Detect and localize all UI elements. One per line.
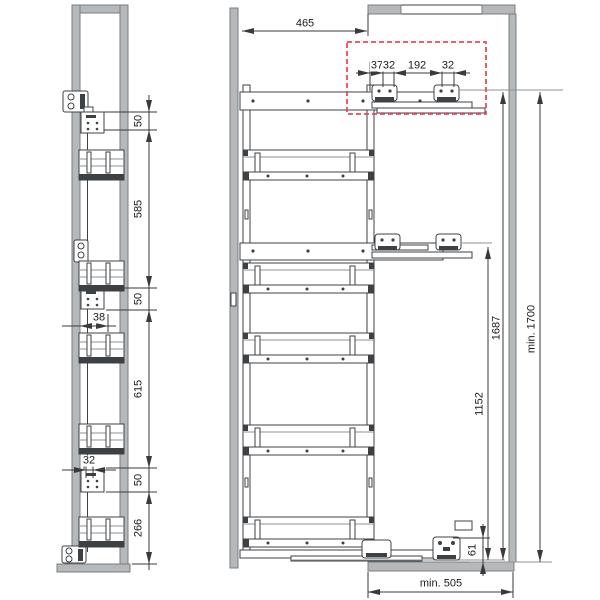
front-view-basket: [243, 333, 374, 363]
dim-label-side-upper-span: 585: [134, 199, 145, 219]
front-view-mid-roller-clip: [436, 234, 461, 250]
drawing-linework: [0, 0, 600, 600]
dim-label-side-bracket-inset: 38: [92, 313, 106, 324]
side-view-roller-carriage-mid: [74, 240, 88, 262]
dim-label-front-frame-depth: 465: [295, 19, 315, 30]
dim-label-detail-offset-c: 32: [441, 61, 455, 72]
dim-label-top-rail-height: 1687: [492, 315, 503, 341]
side-view-basket: [79, 424, 124, 454]
side-view-mounting-plate-top: [81, 107, 104, 133]
dim-label-side-hole-pitch: 32: [82, 456, 96, 467]
front-view: [230, 5, 563, 598]
dim-label-side-lower-span: 615: [134, 379, 145, 399]
dim-label-detail-offset-b: 32: [382, 61, 396, 72]
dim-label-side-mid-offset: 50: [134, 292, 145, 306]
dim-label-side-bottom-span: 266: [134, 518, 145, 538]
front-view-basket: [243, 150, 374, 180]
dim-label-cabinet-depth: min. 505: [419, 579, 463, 590]
dim-label-side-top-offset: 50: [134, 114, 145, 128]
front-view-top-roller-clip: [434, 85, 459, 101]
side-view-roller-carriage-bottom: [62, 546, 86, 563]
front-view-floor-bracket: [433, 537, 460, 560]
side-view-dimension-38: [62, 314, 116, 332]
side-view-basket: [79, 261, 124, 291]
dim-label-mid-rail-height: 1152: [475, 391, 486, 417]
dim-label-niche-height: min. 1700: [527, 304, 538, 354]
side-view-basket: [79, 333, 124, 363]
dim-label-floor-bracket-height: 61: [468, 543, 479, 557]
dim-label-detail-span: 192: [407, 61, 427, 72]
side-view-basket: [79, 150, 124, 180]
technical-drawing-canvas: 50 585 50 38 615 32 50 266 465 37 32 192…: [0, 0, 600, 600]
front-view-basket: [243, 425, 374, 455]
front-view-top-roller-clip: [372, 85, 397, 101]
front-view-mid-roller-clip: [375, 234, 400, 250]
front-view-basket: [243, 263, 374, 293]
dim-label-side-bottom-offset: 50: [134, 473, 145, 487]
front-view-mid-rail: [240, 234, 492, 260]
front-view-basket: [243, 517, 374, 547]
side-view-basket: [79, 517, 124, 547]
